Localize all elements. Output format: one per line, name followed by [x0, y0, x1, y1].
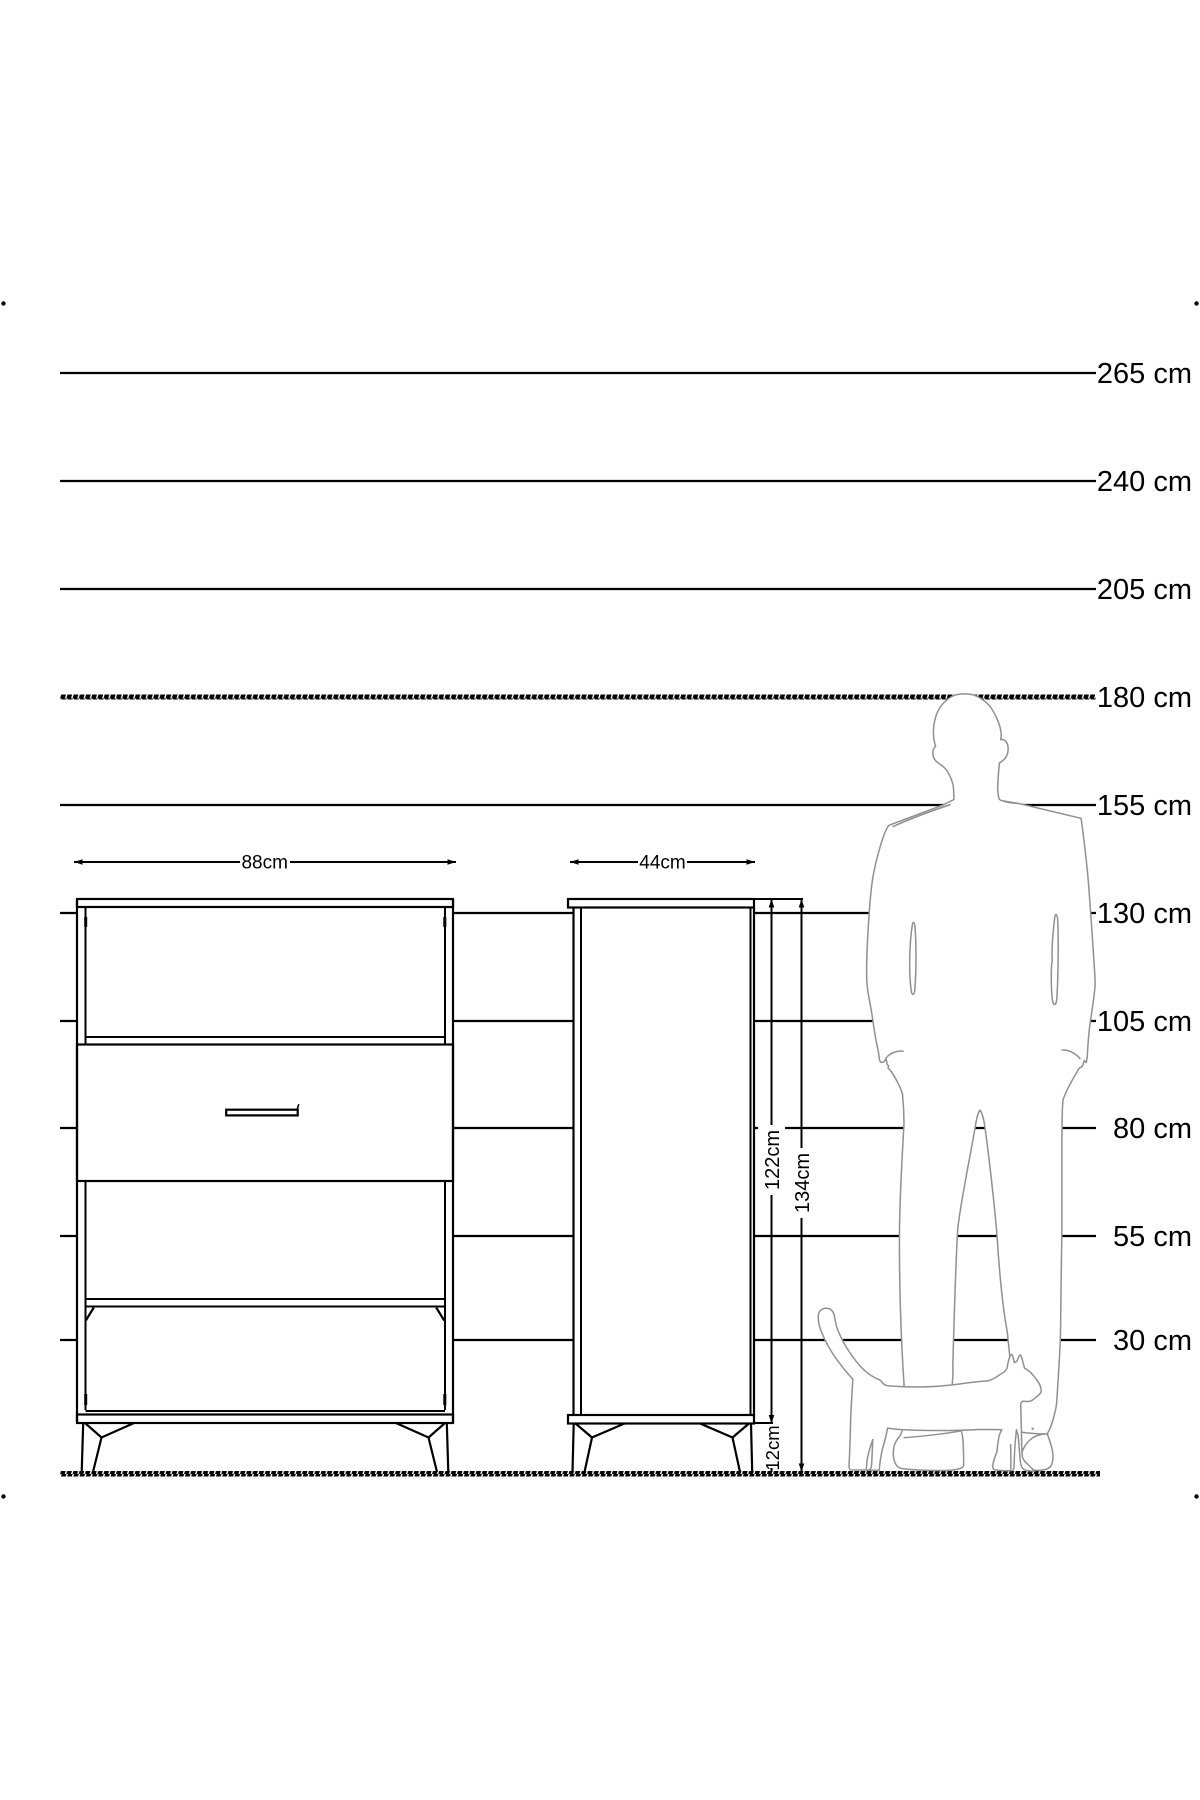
svg-text:155 cm: 155 cm: [1097, 790, 1192, 822]
svg-text:130 cm: 130 cm: [1097, 898, 1192, 930]
svg-text:44cm: 44cm: [639, 853, 685, 874]
svg-text:105 cm: 105 cm: [1097, 1006, 1192, 1038]
svg-text:30 cm: 30 cm: [1113, 1325, 1192, 1357]
svg-text:80 cm: 80 cm: [1113, 1113, 1192, 1145]
svg-text:180 cm: 180 cm: [1097, 682, 1192, 714]
svg-text:240 cm: 240 cm: [1097, 466, 1192, 498]
svg-text:12cm: 12cm: [762, 1425, 783, 1470]
svg-text:205 cm: 205 cm: [1097, 574, 1192, 606]
svg-text:55 cm: 55 cm: [1113, 1221, 1192, 1253]
svg-text:134cm: 134cm: [792, 1153, 814, 1213]
svg-text:265 cm: 265 cm: [1097, 358, 1192, 390]
svg-text:88cm: 88cm: [241, 853, 287, 874]
svg-text:122cm: 122cm: [762, 1130, 784, 1190]
